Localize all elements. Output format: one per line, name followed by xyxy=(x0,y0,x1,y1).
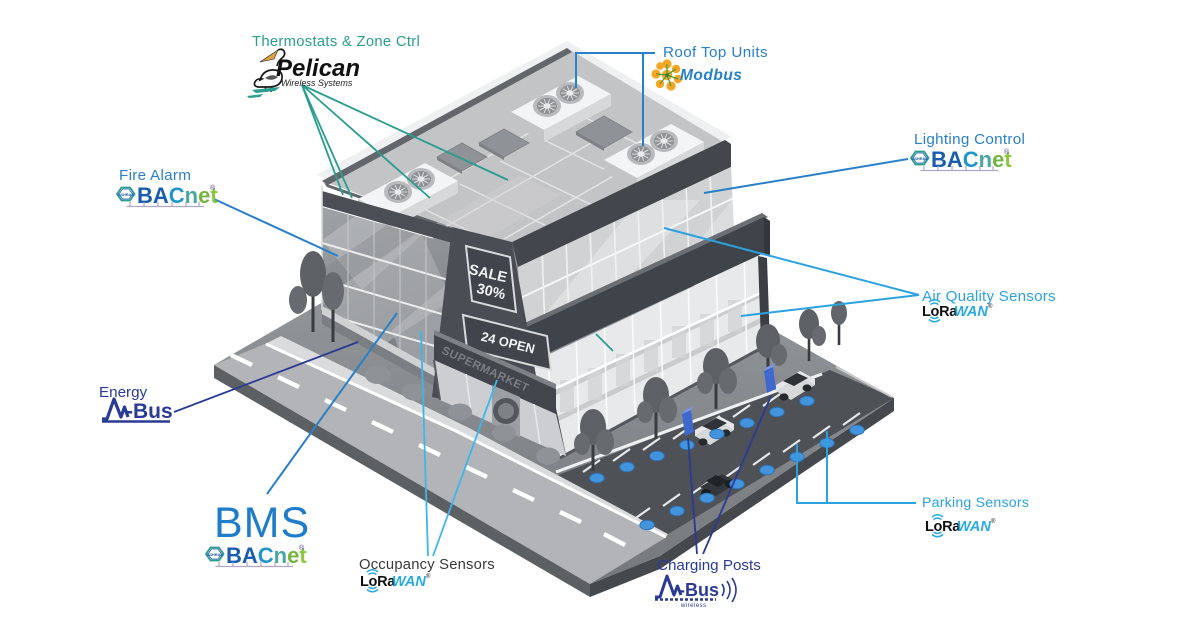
svg-text:®: ® xyxy=(991,518,996,525)
svg-text:WAN: WAN xyxy=(954,304,988,320)
svg-text:®: ® xyxy=(299,544,305,552)
svg-text:Lighting Control: Lighting Control xyxy=(914,131,1025,148)
svg-text:®: ® xyxy=(1004,148,1010,156)
svg-text:Thermostats & Zone Ctrl: Thermostats & Zone Ctrl xyxy=(252,34,420,50)
svg-text:BACnet: BACnet xyxy=(931,147,1012,172)
svg-text:BMS: BMS xyxy=(214,499,310,547)
svg-text:WAN: WAN xyxy=(957,519,991,535)
svg-text:LoRa: LoRa xyxy=(922,304,958,320)
svg-text:Parking Sensors: Parking Sensors xyxy=(922,495,1029,511)
svg-text:Modbus: Modbus xyxy=(680,67,742,84)
svg-text:BACnet: BACnet xyxy=(226,543,307,568)
svg-text:wireless: wireless xyxy=(680,603,707,609)
svg-text:-Bus: -Bus xyxy=(126,400,173,423)
svg-text:LoRa: LoRa xyxy=(925,519,961,535)
svg-text:®: ® xyxy=(210,184,216,192)
svg-text:Air Quality Sensors: Air Quality Sensors xyxy=(922,288,1056,305)
svg-text:BACnet: BACnet xyxy=(137,183,218,208)
svg-text:Fire Alarm: Fire Alarm xyxy=(119,167,191,184)
svg-text:®: ® xyxy=(426,573,431,580)
svg-text:Charging Posts: Charging Posts xyxy=(657,557,761,574)
svg-text:-Bus: -Bus xyxy=(679,580,719,600)
svg-text:ASHRAE: ASHRAE xyxy=(206,552,223,557)
svg-text:Energy: Energy xyxy=(99,384,148,401)
svg-text:Occupancy Sensors: Occupancy Sensors xyxy=(359,557,495,573)
svg-text:Wireless Systems: Wireless Systems xyxy=(281,78,353,88)
svg-text:Roof Top Units: Roof Top Units xyxy=(663,44,768,61)
svg-text:LoRa: LoRa xyxy=(360,574,396,590)
svg-text:ASHRAE: ASHRAE xyxy=(911,156,928,161)
svg-text:®: ® xyxy=(988,303,993,310)
svg-text:ASHRAE: ASHRAE xyxy=(117,192,134,197)
svg-text:WAN: WAN xyxy=(392,574,426,590)
